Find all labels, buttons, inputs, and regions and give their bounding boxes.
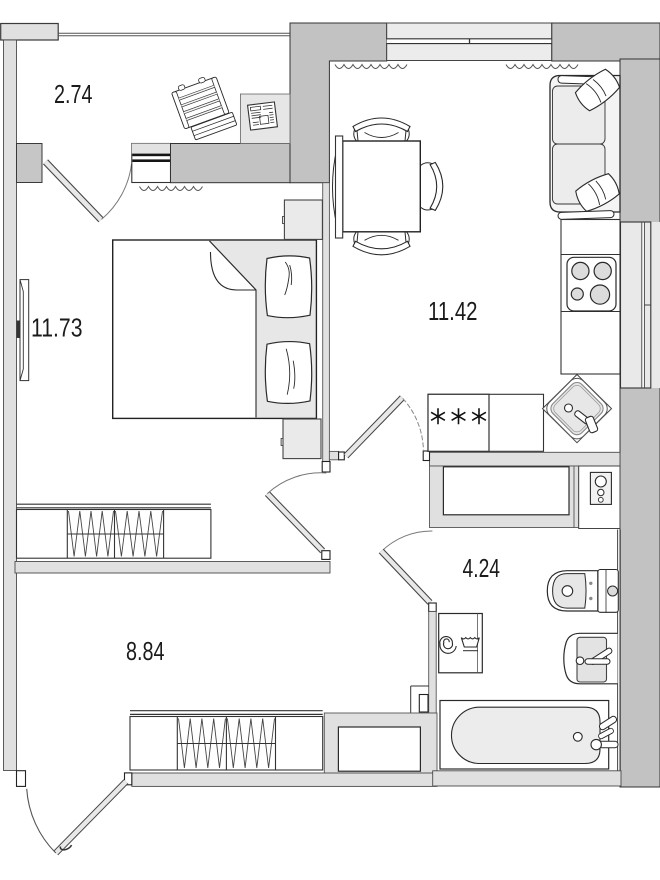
svg-text:11.73: 11.73 bbox=[31, 314, 83, 342]
svg-text:8.84: 8.84 bbox=[126, 638, 165, 666]
svg-text:11.42: 11.42 bbox=[428, 298, 478, 326]
svg-text:4.24: 4.24 bbox=[463, 555, 501, 583]
svg-text:2.74: 2.74 bbox=[54, 81, 93, 109]
